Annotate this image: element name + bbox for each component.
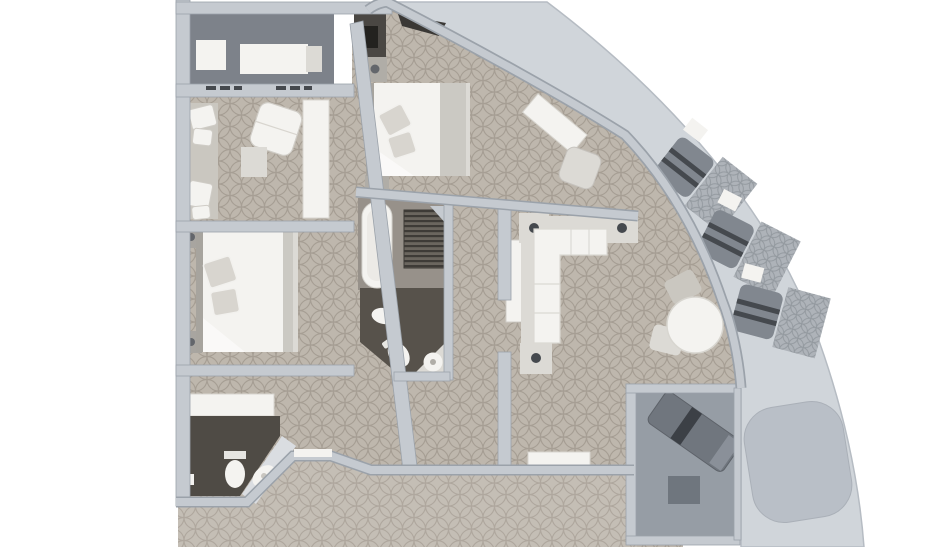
- end-table-knob: [531, 353, 541, 363]
- bed-footboard: [466, 83, 470, 176]
- floor-plan-image: [0, 0, 930, 547]
- balcony-lounger-back: [306, 46, 322, 72]
- balcony-side-table: [196, 40, 226, 70]
- spa-pad: [740, 397, 857, 527]
- sitting-room-table: [241, 147, 267, 177]
- bed-headboard: [196, 229, 203, 352]
- nightstand-knob: [371, 65, 380, 74]
- west-wall: [176, 0, 190, 506]
- room-divider-wall: [176, 365, 354, 376]
- dining-table: [667, 297, 723, 353]
- living-west-wall: [498, 206, 511, 300]
- balcony-room-table: [668, 476, 700, 504]
- floor-plan-svg: [0, 0, 930, 547]
- toilet: [225, 460, 245, 488]
- shower: [404, 210, 444, 268]
- north-wall: [176, 2, 392, 14]
- balcony-room-west-wall: [626, 384, 636, 542]
- bathroom-south-wall: [394, 372, 450, 381]
- balcony-lounger: [240, 44, 308, 74]
- balcony-room-north-wall: [626, 384, 740, 393]
- console-desk: [303, 100, 329, 218]
- balcony-room-south-wall: [626, 536, 740, 545]
- toilet-tank: [224, 451, 246, 459]
- bathroom-east-wall: [444, 196, 453, 380]
- bed-foot-band: [283, 229, 293, 352]
- end-table-knob: [617, 223, 627, 233]
- wardrobe-counter: [186, 394, 274, 416]
- sink-drain: [430, 359, 436, 365]
- balcony-wall: [176, 84, 354, 97]
- living-west-wall: [498, 352, 511, 472]
- balcony-room-east-wall: [734, 388, 741, 540]
- bed-footboard: [293, 229, 298, 352]
- room-divider-wall: [176, 221, 354, 232]
- entry-door: [294, 449, 332, 457]
- bed-foot-band: [440, 83, 466, 176]
